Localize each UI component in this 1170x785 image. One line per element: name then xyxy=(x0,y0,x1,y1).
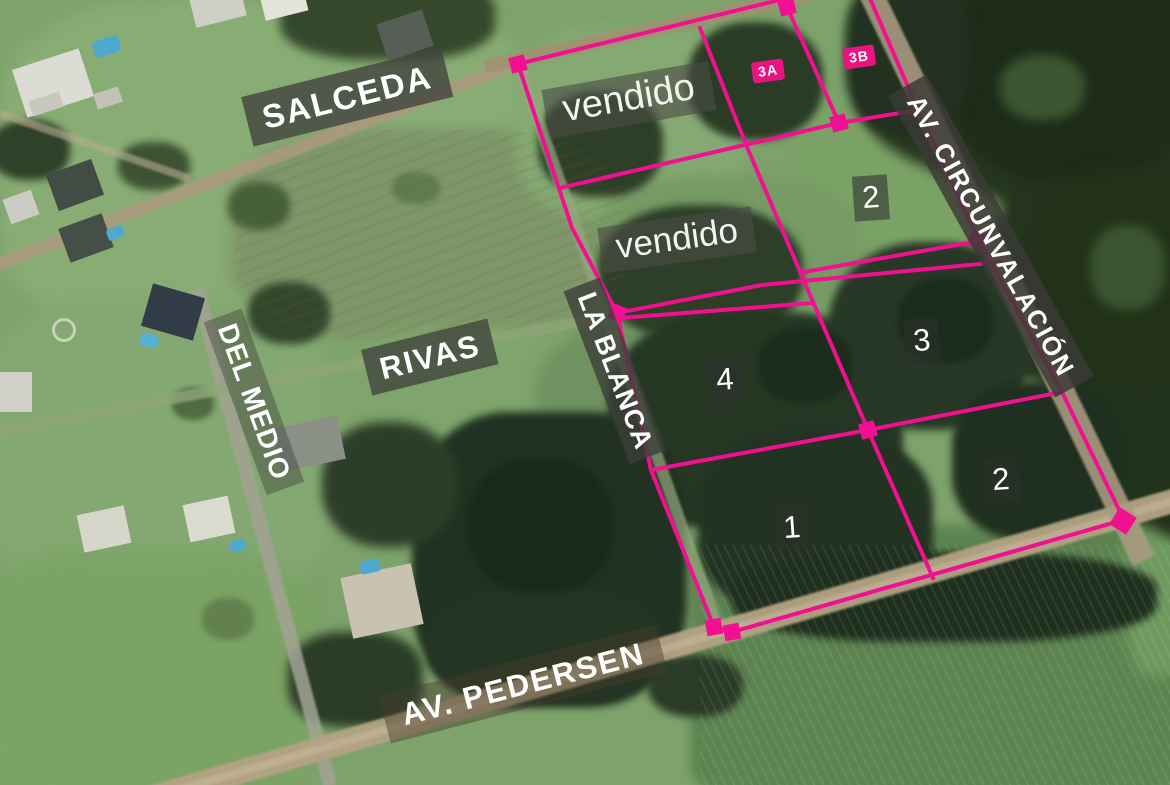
boundary-node xyxy=(508,54,528,74)
boundary-top xyxy=(518,0,812,64)
lot-badge-3b: 3B xyxy=(842,44,877,69)
lot-number-1: 1 xyxy=(773,504,811,551)
boundary-node xyxy=(829,113,849,133)
boundary-node xyxy=(1109,507,1137,535)
lot-number-2-bottom: 2 xyxy=(982,456,1020,503)
boundary-node xyxy=(723,623,742,642)
boundary-node xyxy=(705,618,724,637)
lot-number-3: 3 xyxy=(903,317,941,364)
divider-3a-3b xyxy=(787,7,839,123)
boundary-node xyxy=(777,0,797,17)
boundary-node xyxy=(858,420,878,440)
aerial-lot-map: SALCEDA DEL MEDIO RIVAS LA BLANCA AV. CI… xyxy=(0,0,1170,785)
lot-badge-3a: 3A xyxy=(751,58,786,83)
lot-number-4: 4 xyxy=(706,356,744,403)
lot-number-2-top: 2 xyxy=(852,174,890,221)
